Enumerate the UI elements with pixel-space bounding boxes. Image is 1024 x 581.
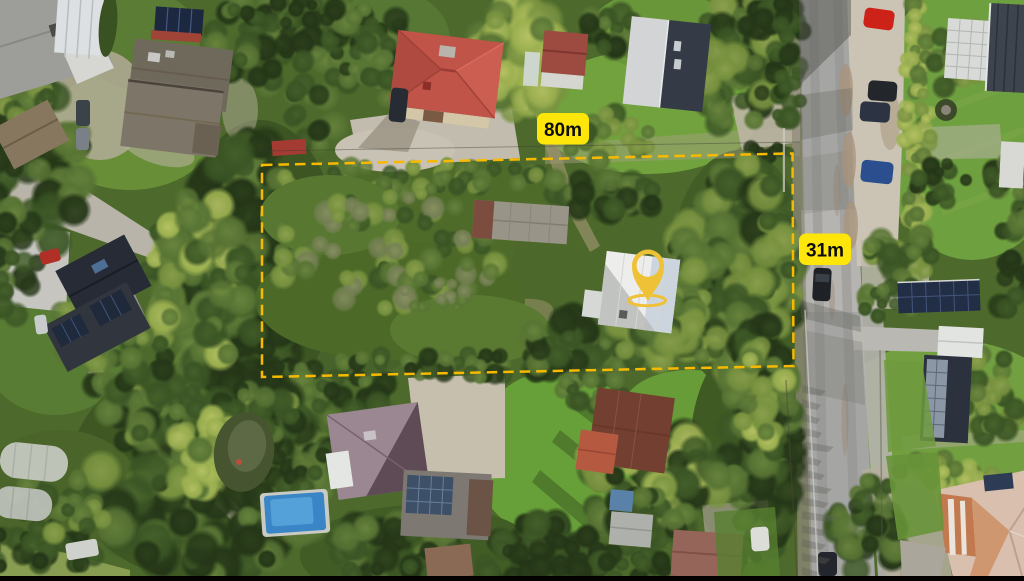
svg-text:80m: 80m xyxy=(544,120,582,141)
svg-text:31m: 31m xyxy=(806,240,844,261)
